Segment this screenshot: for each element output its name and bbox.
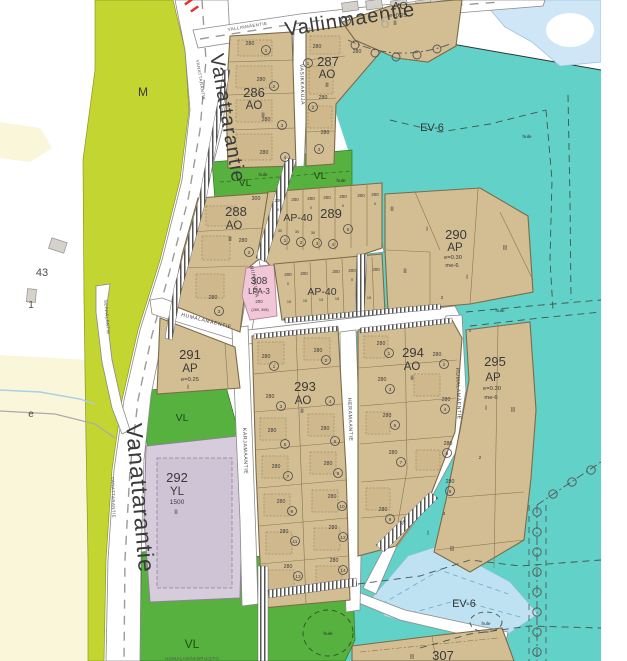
svg-text:280: 280 — [329, 525, 338, 531]
svg-text:280: 280 — [444, 441, 453, 447]
svg-text:LPA-3: LPA-3 — [248, 287, 270, 296]
hule-4: hule — [495, 308, 504, 314]
svg-text:200: 200 — [323, 195, 331, 200]
svg-text:AO: AO — [404, 361, 421, 373]
svg-text:2: 2 — [443, 362, 446, 368]
svg-text:280: 280 — [209, 295, 218, 301]
ev6-label-north: EV-6 — [420, 122, 444, 134]
svg-text:292: 292 — [166, 470, 188, 485]
svg-text:3: 3 — [389, 387, 392, 393]
svg-text:AP: AP — [485, 372, 501, 384]
svg-text:7: 7 — [400, 460, 403, 466]
svg-text:7: 7 — [287, 474, 290, 480]
svg-text:280: 280 — [378, 377, 387, 383]
svg-text:200: 200 — [372, 267, 380, 272]
svg-text:200: 200 — [357, 193, 365, 198]
svg-text:291: 291 — [179, 347, 201, 362]
svg-text:2: 2 — [300, 240, 303, 246]
svg-text:280: 280 — [268, 428, 277, 434]
svg-text:15: 15 — [319, 298, 323, 302]
svg-text:1: 1 — [307, 61, 310, 67]
svg-text:I: I — [187, 384, 189, 391]
vl-label-3: VL — [176, 412, 189, 424]
svg-text:280: 280 — [284, 564, 293, 570]
svg-text:II: II — [403, 268, 407, 275]
svg-text:6: 6 — [334, 439, 337, 445]
vl-label-2: VL — [314, 170, 327, 182]
svg-text:II: II — [287, 282, 289, 286]
svg-text:II: II — [511, 405, 515, 414]
svg-text:AO: AO — [226, 220, 243, 232]
svg-text:e=0.25: e=0.25 — [181, 377, 199, 383]
svg-text:308: 308 — [251, 276, 268, 287]
svg-text:2: 2 — [325, 358, 328, 364]
svg-text:10: 10 — [339, 504, 345, 510]
svg-text:307: 307 — [432, 648, 454, 661]
svg-text:1: 1 — [345, 19, 348, 25]
hule-2: hule — [336, 178, 345, 184]
svg-text:280: 280 — [272, 464, 281, 470]
svg-text:200: 200 — [291, 197, 299, 202]
svg-text:1: 1 — [273, 364, 276, 370]
svg-text:II: II — [393, 20, 397, 27]
hule-3: hule — [522, 134, 531, 140]
svg-text:1500: 1500 — [170, 499, 185, 506]
svg-text:9: 9 — [389, 517, 392, 523]
hule-5: hule — [323, 631, 332, 637]
svg-text:13: 13 — [295, 574, 301, 580]
svg-text:3: 3 — [280, 404, 283, 410]
svg-text:2: 2 — [479, 455, 482, 461]
svg-text:287: 287 — [317, 54, 339, 69]
svg-text:II: II — [228, 236, 232, 243]
svg-text:280: 280 — [280, 529, 289, 535]
svg-text:I: I — [427, 530, 429, 537]
svg-text:(289, 308): (289, 308) — [251, 308, 269, 312]
svg-text:15: 15 — [287, 300, 291, 304]
svg-text:5: 5 — [347, 227, 350, 233]
svg-text:30: 30 — [311, 231, 315, 235]
svg-text:280: 280 — [328, 494, 337, 500]
svg-text:YL: YL — [170, 486, 185, 498]
svg-text:II: II — [300, 408, 304, 415]
svg-text:II: II — [174, 509, 178, 516]
svg-text:II: II — [342, 204, 344, 208]
svg-text:30: 30 — [278, 229, 282, 233]
svg-text:II: II — [503, 243, 507, 252]
svg-text:AO: AO — [295, 395, 312, 407]
svg-text:294: 294 — [402, 345, 424, 360]
svg-text:280: 280 — [260, 150, 269, 156]
svg-text:e=0.30: e=0.30 — [483, 386, 501, 392]
svg-text:280: 280 — [262, 354, 271, 360]
svg-text:me-6: me-6 — [484, 395, 497, 401]
svg-text:3: 3 — [443, 511, 446, 517]
svg-text:2: 2 — [312, 105, 315, 111]
svg-text:II: II — [374, 202, 376, 206]
svg-text:280: 280 — [383, 413, 392, 419]
svg-text:8: 8 — [449, 489, 452, 495]
svg-text:280: 280 — [319, 95, 328, 101]
svg-text:II: II — [410, 375, 414, 382]
svg-text:280: 280 — [257, 77, 266, 83]
field-area-south — [0, 355, 95, 661]
svg-text:280: 280 — [324, 461, 333, 467]
svg-text:295: 295 — [484, 354, 506, 369]
svg-text:15: 15 — [303, 299, 307, 303]
svg-text:280: 280 — [379, 507, 388, 513]
svg-text:AO: AO — [319, 69, 336, 81]
svg-text:5: 5 — [284, 442, 287, 448]
svg-text:me-6: me-6 — [445, 263, 458, 269]
ev6-label-south: EV-6 — [452, 598, 476, 610]
svg-text:280: 280 — [433, 352, 442, 358]
parcel-1: 1 — [28, 300, 34, 311]
svg-text:II: II — [325, 82, 329, 89]
svg-text:3: 3 — [316, 241, 319, 247]
svg-text:280: 280 — [442, 397, 451, 403]
svg-text:II: II — [351, 278, 353, 282]
hule-6: hule — [481, 621, 490, 627]
svg-text:2: 2 — [273, 84, 276, 90]
svg-text:288: 288 — [225, 204, 247, 219]
svg-text:289: 289 — [320, 206, 342, 221]
svg-text:11: 11 — [293, 539, 298, 545]
svg-text:280: 280 — [246, 41, 255, 47]
svg-text:4: 4 — [284, 155, 287, 161]
zone-m-label: M — [138, 85, 148, 99]
svg-text:1: 1 — [469, 328, 472, 334]
svg-text:e=0.25: e=0.25 — [389, 13, 407, 19]
svg-text:290: 290 — [445, 227, 467, 242]
svg-text:II: II — [277, 208, 279, 212]
svg-text:280: 280 — [239, 238, 248, 244]
svg-text:I: I — [485, 405, 487, 412]
svg-text:3: 3 — [318, 147, 321, 153]
svg-text:280: 280 — [377, 341, 386, 347]
svg-text:AO: AO — [246, 100, 263, 112]
svg-text:280: 280 — [262, 117, 271, 123]
svg-text:200: 200 — [307, 196, 315, 201]
svg-text:280: 280 — [313, 44, 322, 50]
svg-text:200: 200 — [348, 268, 356, 273]
svg-text:4: 4 — [332, 242, 335, 248]
svg-text:200: 200 — [371, 192, 379, 197]
svg-text:II: II — [390, 206, 394, 213]
svg-text:280: 280 — [321, 426, 330, 432]
svg-text:I: I — [466, 274, 468, 281]
svg-text:2: 2 — [248, 250, 251, 256]
svg-text:AO: AO — [392, 0, 407, 12]
svg-text:4: 4 — [329, 399, 332, 405]
svg-text:286: 286 — [243, 85, 265, 100]
svg-text:200: 200 — [274, 198, 282, 203]
svg-text:200: 200 — [300, 271, 308, 276]
vl-label-4: VL — [185, 637, 200, 651]
svg-text:3: 3 — [218, 309, 221, 315]
svg-text:15: 15 — [367, 296, 371, 300]
svg-text:280: 280 — [277, 499, 286, 505]
svg-text:6: 6 — [446, 451, 449, 457]
svg-text:1: 1 — [284, 238, 287, 244]
svg-text:280: 280 — [353, 49, 362, 55]
parcel-43: 43 — [36, 267, 48, 279]
svg-text:280: 280 — [314, 348, 323, 354]
svg-text:II: II — [450, 544, 454, 553]
svg-text:9: 9 — [291, 509, 294, 515]
svg-text:200: 200 — [332, 269, 340, 274]
svg-text:14: 14 — [340, 568, 346, 574]
zoning-map-canvas: M EV-6 EV-6 VL VL VL VL HUMALAMÄENPUISTO… — [0, 0, 627, 661]
page-margin — [601, 0, 627, 661]
svg-text:2: 2 — [441, 295, 444, 301]
svg-text:II: II — [310, 206, 312, 210]
svg-text:200: 200 — [255, 299, 263, 304]
svg-text:280: 280 — [389, 450, 398, 456]
svg-text:15: 15 — [335, 297, 339, 301]
svg-text:280: 280 — [321, 130, 330, 136]
svg-text:300: 300 — [252, 196, 261, 202]
water-island — [546, 13, 594, 47]
svg-text:12: 12 — [340, 535, 346, 541]
svg-text:30: 30 — [295, 230, 299, 234]
svg-text:3: 3 — [281, 123, 284, 129]
svg-text:AP-40: AP-40 — [307, 286, 336, 298]
park-name-label: HUMALAMÄENPUISTO — [165, 656, 219, 661]
svg-text:II: II — [410, 652, 414, 661]
svg-text:AP-40: AP-40 — [283, 212, 312, 224]
svg-text:280: 280 — [266, 394, 275, 400]
svg-text:4: 4 — [444, 407, 447, 413]
svg-text:1: 1 — [388, 351, 391, 357]
svg-text:e=0.30: e=0.30 — [444, 255, 462, 261]
svg-text:1: 1 — [265, 48, 268, 54]
svg-text:5: 5 — [394, 423, 397, 429]
hule-1: hule — [258, 172, 267, 178]
svg-text:280: 280 — [330, 558, 339, 564]
svg-text:280: 280 — [446, 479, 455, 485]
zoning-map[interactable]: M EV-6 EV-6 VL VL VL VL HUMALAMÄENPUISTO… — [0, 0, 627, 661]
svg-text:200: 200 — [284, 272, 292, 277]
road-e-label: e — [28, 409, 34, 420]
svg-text:AP: AP — [182, 363, 198, 375]
svg-text:293: 293 — [294, 379, 316, 394]
svg-text:I: I — [426, 226, 428, 233]
svg-text:200: 200 — [339, 194, 347, 199]
svg-text:8: 8 — [337, 471, 340, 477]
svg-text:AP: AP — [447, 242, 463, 254]
